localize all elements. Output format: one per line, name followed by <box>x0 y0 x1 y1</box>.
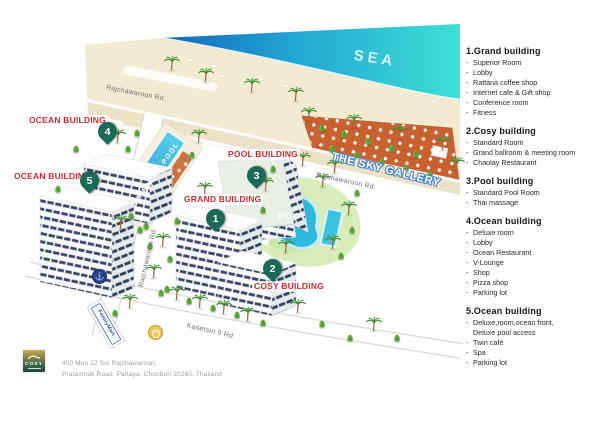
legend-item-text: Lobby <box>473 238 493 248</box>
legend-item: -Deluxe,room,ocean front, Deluxe pool ac… <box>466 318 598 338</box>
legend-item: -Conference room <box>466 98 598 108</box>
legend-item-dash: - <box>466 248 473 258</box>
pin-number: 2 <box>263 259 282 278</box>
legend-item: -Rattana coffee shop <box>466 78 598 88</box>
legend-item-text: Standard Pool Room <box>473 188 540 198</box>
pin-number: 1 <box>206 209 225 228</box>
cosy-logo-tagline <box>28 368 41 369</box>
legend-item: -Parking lot <box>466 288 598 298</box>
legend-item-dash: - <box>466 268 473 278</box>
legend-item-dash: - <box>466 338 473 348</box>
legend-item: -Spa <box>466 348 598 358</box>
legend-item-text: Conference room <box>473 98 529 108</box>
legend-item: -Shop <box>466 268 598 278</box>
legend-item: -V-Lounge <box>466 258 598 268</box>
poi-marker-yellow <box>148 325 163 340</box>
legend-item-dash: - <box>466 228 473 238</box>
legend-item-dash: - <box>466 68 473 78</box>
legend-item-text: Deluxe,room,ocean front, Deluxe pool acc… <box>473 318 554 338</box>
legend-item: -Ocean Restaurant <box>466 248 598 258</box>
legend-item-text: Rattana coffee shop <box>473 78 537 88</box>
cosy-logo-text: COSY <box>25 362 43 367</box>
label-cosy-building: COSY BUILDING <box>252 281 326 292</box>
legend-item-text: Fitness <box>473 108 496 118</box>
label-grand-building: GRAND BUILDING <box>182 194 263 205</box>
legend-section: 4.Ocean building-Deluxe room-Lobby-Ocean… <box>466 216 598 298</box>
legend-item-dash: - <box>466 58 473 68</box>
map-pin-cosy-building: 2 <box>259 255 286 282</box>
legend-item-text: Parking lot <box>473 288 507 298</box>
map-pin-ocean-building-5: 5 <box>76 167 103 194</box>
legend-item-dash: - <box>466 138 473 148</box>
legend-section: 5.Ocean building-Deluxe,room,ocean front… <box>466 306 598 368</box>
legend-item-text: Pizza shop <box>473 278 508 288</box>
legend-item-dash: - <box>466 188 473 198</box>
address-block: 400 Moo 12 Soi Rajchawaroon, Pratamnuk R… <box>62 358 222 380</box>
legend-item-dash: - <box>466 98 473 108</box>
legend-item-dash: - <box>466 358 473 368</box>
legend-section-title: 5.Ocean building <box>466 306 598 316</box>
legend-item-text: Deluxe room <box>473 228 514 238</box>
map-pin-grand-building: 1 <box>202 205 229 232</box>
legend-item: -Chaolay Restaurant <box>466 158 598 168</box>
legend-item: -Parking lot <box>466 358 598 368</box>
legend-item-text: Chaolay Restaurant <box>473 158 537 168</box>
address-line-1: 400 Moo 12 Soi Rajchawaroon, <box>62 358 222 369</box>
legend-section: 1.Grand building-Superior Room-Lobby-Rat… <box>466 46 598 118</box>
label-pool-building: POOL BUILDING <box>226 149 300 160</box>
legend-item-dash: - <box>466 238 473 248</box>
legend-section: 2.Cosy building-Standard Room-Grand ball… <box>466 126 598 168</box>
legend-item: -Standard Pool Room <box>466 188 598 198</box>
map-pin-pool-building: 3 <box>243 162 270 189</box>
legend-item-dash: - <box>466 148 473 158</box>
legend-item: -Thai massage <box>466 198 598 208</box>
resort-map-page: SEA THE SKY GALLERY SWIMMING POOL POOL R… <box>0 0 600 424</box>
legend-item-text: V-Lounge <box>473 258 504 268</box>
pin-number: 5 <box>80 171 99 190</box>
cosy-logo: COSY <box>23 350 45 372</box>
legend-section-title: 2.Cosy building <box>466 126 598 136</box>
pin-number: 3 <box>247 166 266 185</box>
legend-section-title: 4.Ocean building <box>466 216 598 226</box>
legend-item-dash: - <box>466 108 473 118</box>
legend-item-dash: - <box>466 158 473 168</box>
legend-item: -Superior Room <box>466 58 598 68</box>
legend-item-dash: - <box>466 288 473 298</box>
label-ocean-building-4: OCEAN BUILDING <box>27 115 108 126</box>
address-line-2: Pratamnuk Road, Pattaya, Chonburi 20260,… <box>62 369 222 380</box>
legend-item-dash: - <box>466 198 473 208</box>
bird-icon <box>27 354 41 361</box>
legend-item-dash: - <box>466 88 473 98</box>
legend-item-dash: - <box>466 348 473 358</box>
legend-item-text: Standard Room <box>473 138 523 148</box>
legend-item: -Grand ballroom & meeting room <box>466 148 598 158</box>
legend-item-text: Internet cafe & Gift shop <box>473 88 551 98</box>
legend: 1.Grand building-Superior Room-Lobby-Rat… <box>466 46 598 368</box>
legend-section: 3.Pool building-Standard Pool Room-Thai … <box>466 176 598 208</box>
anchor-icon: ⚓ <box>92 269 107 284</box>
legend-section-title: 1.Grand building <box>466 46 598 56</box>
legend-item-text: Thai massage <box>473 198 518 208</box>
legend-item: -Deluxe room <box>466 228 598 238</box>
legend-item-text: Lobby <box>473 68 493 78</box>
legend-item: -Lobby <box>466 68 598 78</box>
legend-section-title: 3.Pool building <box>466 176 598 186</box>
legend-item-text: Grand ballroom & meeting room <box>473 148 575 158</box>
legend-item-text: Parking lot <box>473 358 507 368</box>
legend-item: -Pizza shop <box>466 278 598 288</box>
legend-item-text: Superior Room <box>473 58 521 68</box>
legend-item-dash: - <box>466 318 473 338</box>
legend-item-text: Twin café <box>473 338 503 348</box>
building-ocean-5 <box>40 186 134 298</box>
legend-item: -Internet cafe & Gift shop <box>466 88 598 98</box>
legend-item: -Fitness <box>466 108 598 118</box>
pin-number: 4 <box>98 122 117 141</box>
legend-item-dash: - <box>466 258 473 268</box>
map-pin-ocean-building-4: 4 <box>94 118 121 145</box>
legend-item: -Standard Room <box>466 138 598 148</box>
legend-item-text: Ocean Restaurant <box>473 248 531 258</box>
legend-item-dash: - <box>466 78 473 88</box>
legend-item-text: Shop <box>473 268 490 278</box>
legend-item: -Lobby <box>466 238 598 248</box>
legend-item: -Twin café <box>466 338 598 348</box>
pool-label: POOL <box>277 211 309 221</box>
legend-item-dash: - <box>466 278 473 288</box>
legend-item-text: Spa <box>473 348 486 358</box>
